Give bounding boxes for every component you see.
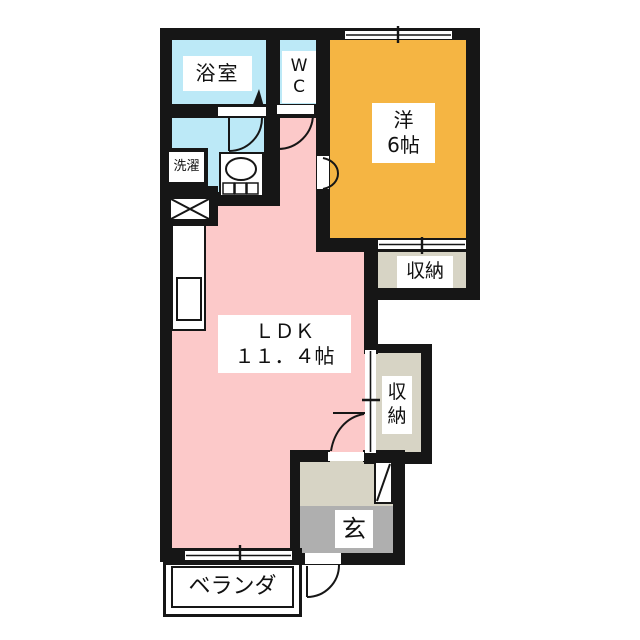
ldk-entrance-door-arc (331, 414, 364, 451)
bathroom-door-arc (229, 118, 262, 151)
front-door-arc (307, 565, 339, 597)
vanity-drawer-3 (247, 183, 258, 194)
wc-door-arc (278, 114, 313, 149)
linework-overlay (0, 0, 640, 640)
vanity-drawer-1 (223, 183, 234, 194)
bathroom-door-wedge (252, 89, 264, 107)
western-door-arc (323, 158, 338, 189)
shoe-cabinet-diagonal (377, 464, 390, 501)
floorplan: 洗濯 ベランダ 浴室 W C 洋 6帖 収納 収 納 ＬＤＫ １１．４帖 玄 (0, 0, 640, 640)
vanity-drawer-2 (235, 183, 246, 194)
vanity-basin (226, 158, 256, 180)
